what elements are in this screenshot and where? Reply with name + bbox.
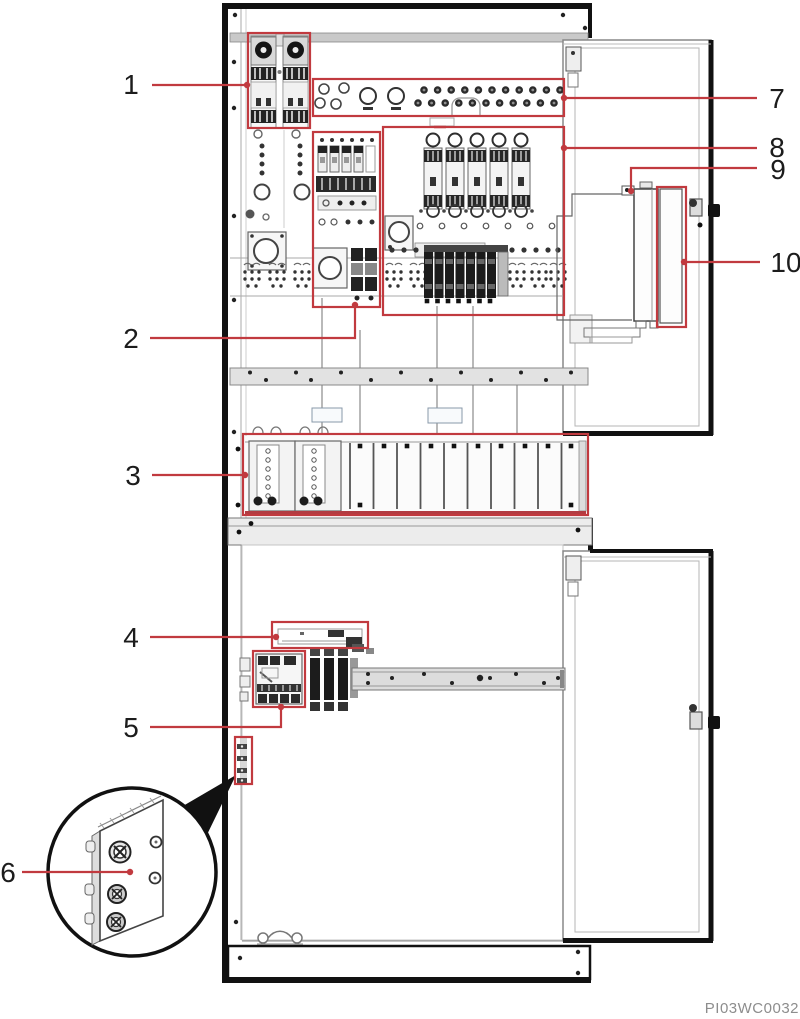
light-bar-assembly	[278, 629, 362, 647]
callout-label-10: 10	[770, 247, 800, 278]
battery-breaker-panel	[385, 134, 592, 344]
cabinet-base	[225, 946, 591, 980]
mounting-rail-lower	[352, 668, 565, 690]
lower-door	[563, 551, 720, 941]
ground-terminal-detail	[48, 775, 236, 956]
callout-label-4: 4	[123, 622, 139, 653]
signal-terminal-strip	[315, 83, 564, 127]
callout-label-1: 1	[123, 69, 139, 100]
ground-bolt-icon	[107, 913, 125, 931]
rectifier-subrack	[236, 427, 586, 514]
wall-tabs	[240, 658, 250, 701]
callout-label-5: 5	[123, 712, 139, 743]
callout-label-9: 9	[770, 154, 786, 185]
dc-distribution-column	[313, 138, 377, 301]
left-terminal-column	[246, 130, 310, 270]
ground-bolt-icon	[110, 842, 131, 863]
callout-box-7	[313, 79, 564, 116]
terminal-pad-row	[243, 263, 566, 287]
callout-label-2: 2	[123, 323, 139, 354]
cabinet-layout-figure: 1 2 3 4 5 6 7 8 9 10 PI03WC0032	[0, 0, 800, 1019]
ground-terminal-edge	[237, 738, 247, 783]
callout-label-3: 3	[125, 460, 141, 491]
diagram-canvas: 1 2 3 4 5 6 7 8 9 10 PI03WC0032	[0, 0, 800, 1019]
figure-code: PI03WC0032	[705, 1000, 799, 1017]
mounting-rail-upper	[230, 368, 588, 385]
cable-label	[312, 408, 342, 422]
two-pole-breaker	[351, 248, 377, 301]
main-input-breaker-pair	[251, 34, 308, 128]
callout-label-7: 7	[769, 83, 785, 114]
mini-breaker-bank	[424, 245, 508, 303]
side-bracket	[570, 315, 592, 343]
callout-label-6: 6	[0, 857, 16, 888]
cable-label	[428, 408, 462, 423]
lower-panel	[242, 545, 563, 944]
cable-runs	[322, 298, 517, 433]
ground-bolt-icon	[108, 885, 126, 903]
dc-breaker-unit	[256, 654, 302, 704]
